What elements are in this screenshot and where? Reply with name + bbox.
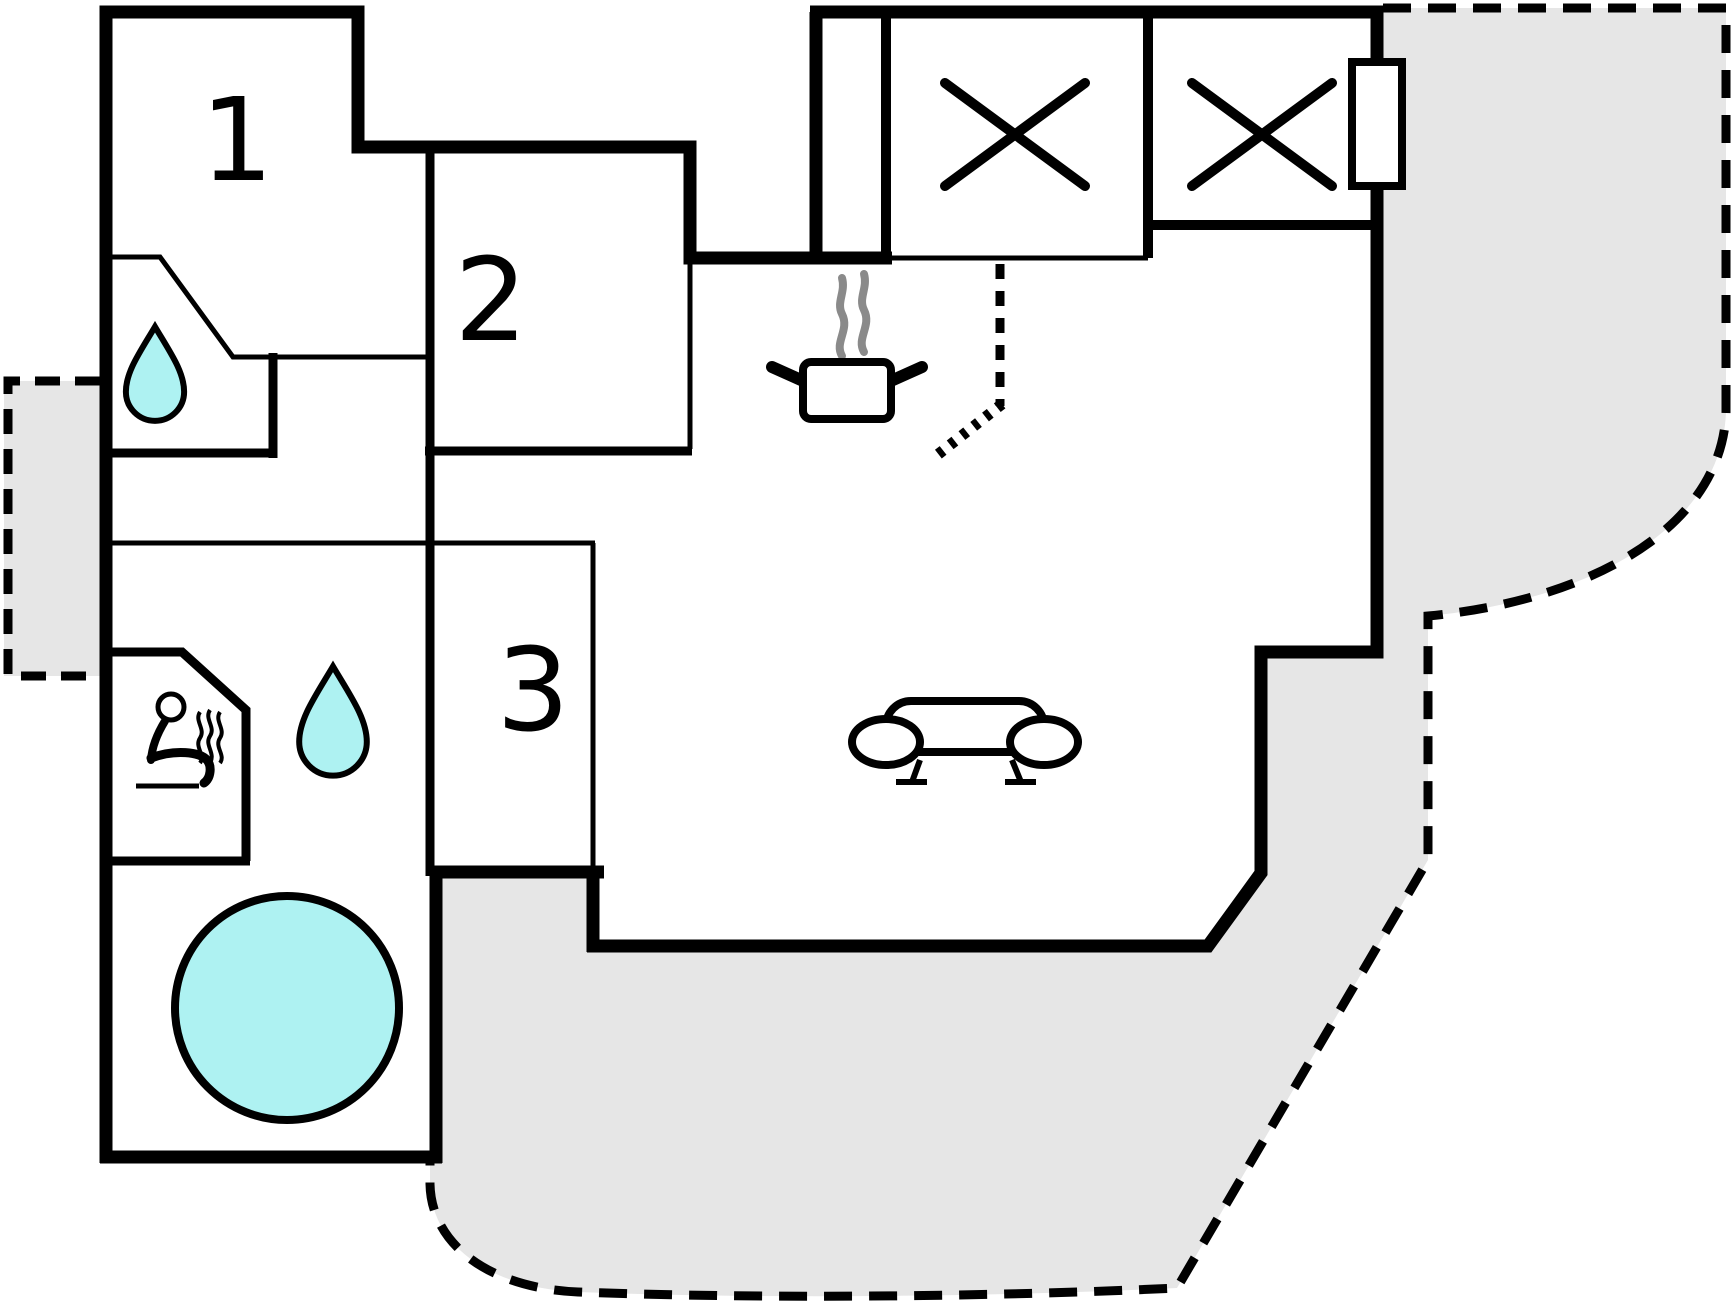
water-drop-icon-wellness <box>299 666 367 775</box>
x-cross-icon <box>1192 83 1332 186</box>
closet-walls <box>886 12 1377 258</box>
terrace-main-fill <box>430 8 1726 1296</box>
terrace-left-fill <box>4 381 100 676</box>
sofa-icon <box>852 701 1078 782</box>
terrace-left <box>4 381 100 676</box>
floor-plan: 1 2 3 <box>0 0 1736 1304</box>
kitchen-dashed-diagonal <box>936 404 1002 456</box>
sauna-icon <box>136 694 222 786</box>
interior-walls-thick <box>100 143 692 876</box>
room-3-label: 3 <box>496 634 569 749</box>
room-2-label: 2 <box>454 244 527 359</box>
closet-x-icons <box>945 83 1332 186</box>
hot-tub-icon <box>175 896 399 1120</box>
stove-pot-icon <box>772 274 922 419</box>
water-drop-icon-bathroom <box>126 327 184 421</box>
window-icon <box>1352 62 1402 186</box>
terrace-main <box>430 8 1726 1296</box>
x-cross-icon <box>945 83 1085 186</box>
room-1-label: 1 <box>200 84 273 199</box>
kitchen-dashed-lines <box>936 264 1002 456</box>
interior-walls-thin <box>104 256 1148 870</box>
